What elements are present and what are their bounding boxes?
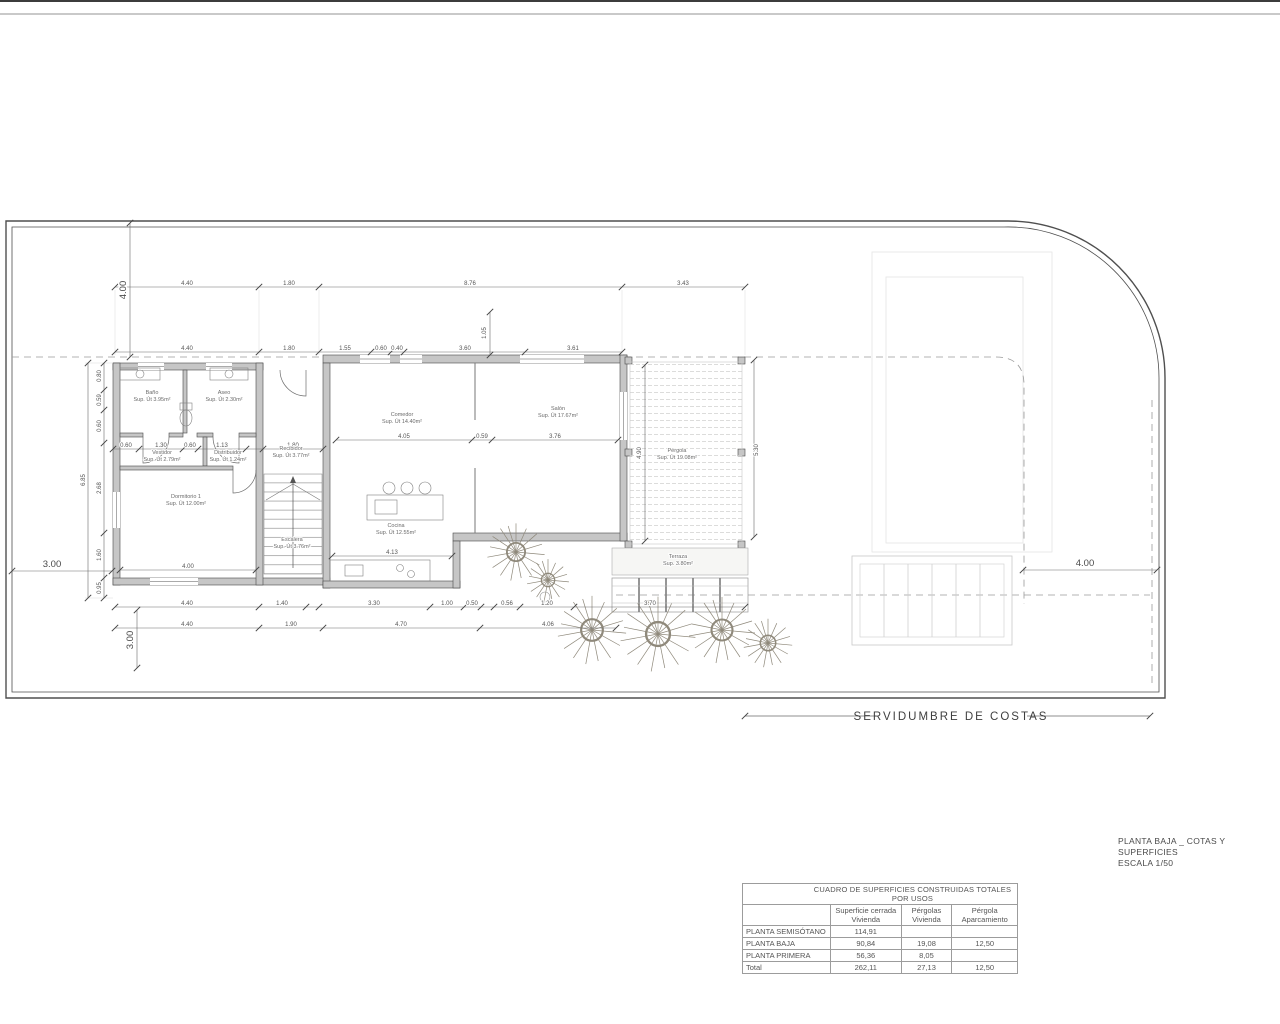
drawing-title: PLANTA BAJA _ COTAS Y SUPERFICIES [1118,836,1268,858]
svg-text:3.30: 3.30 [368,601,380,607]
svg-text:0.56: 0.56 [501,601,513,607]
svg-text:1.13: 1.13 [216,443,228,449]
svg-text:0.60: 0.60 [120,443,132,449]
svg-text:4.70: 4.70 [395,622,407,628]
svg-text:Sup. Út 17.67m²: Sup. Út 17.67m² [538,412,578,419]
svg-text:Terraza: Terraza [669,554,688,560]
table-row: PLANTA SEMISÓTANO 114,91 [743,926,1018,938]
svg-text:Escalera: Escalera [281,537,303,543]
svg-text:5.30: 5.30 [754,444,760,456]
svg-text:Sup. Út 14.40m²: Sup. Út 14.40m² [382,418,422,425]
svg-text:1.80: 1.80 [283,346,295,352]
surfaces-table: CUADRO DE SUPERFICIES CONSTRUIDAS TOTALE… [742,883,1018,974]
svg-text:6.85: 6.85 [81,474,87,486]
surfaces-table-title: CUADRO DE SUPERFICIES CONSTRUIDAS TOTALE… [743,884,1018,905]
svg-text:0.60: 0.60 [97,420,103,432]
svg-text:0.59: 0.59 [476,434,488,440]
svg-text:Sup. Út 3.95m²: Sup. Út 3.95m² [134,396,171,403]
svg-text:1.00: 1.00 [441,601,453,607]
svg-text:Baño: Baño [146,390,159,396]
svg-text:0.50: 0.50 [466,601,478,607]
svg-text:Sup. 3.80m²: Sup. 3.80m² [663,561,693,567]
svg-text:1.05: 1.05 [482,327,488,339]
servidumbre-label: SERVIDUMBRE DE COSTAS [854,711,1049,723]
svg-text:3.00: 3.00 [43,559,62,570]
svg-text:Salón: Salón [551,406,565,412]
svg-text:Recibidor: Recibidor [279,446,302,452]
svg-text:1.60: 1.60 [97,549,103,561]
svg-text:4.06: 4.06 [542,622,554,628]
svg-text:3.00: 3.00 [125,631,136,650]
svg-text:Sup. Út 2.79m²: Sup. Út 2.79m² [144,456,181,463]
svg-text:4.13: 4.13 [386,550,398,556]
header-pergola-aparcamiento: Pérgola Aparcamiento [952,905,1018,926]
svg-text:4.00: 4.00 [1076,558,1095,569]
svg-text:0.60: 0.60 [184,443,196,449]
drawing-scale: ESCALA 1/50 [1118,858,1268,869]
svg-text:4.05: 4.05 [398,434,410,440]
drawing-title-block: PLANTA BAJA _ COTAS Y SUPERFICIES ESCALA… [1118,836,1268,869]
svg-text:1.80: 1.80 [283,281,295,287]
svg-text:3.70: 3.70 [644,601,656,607]
svg-text:Sup. Út 2.30m²: Sup. Út 2.30m² [206,396,243,403]
surfaces-table-header: Superficie cerrada Vivienda Pérgolas Viv… [743,905,1018,926]
dimension-labels: 4.40 1.80 8.76 3.43 4.00 4.40 1.80 1.55 … [43,281,1095,650]
header-empty [743,905,831,926]
svg-text:8.76: 8.76 [464,281,476,287]
svg-text:4.40: 4.40 [181,346,193,352]
svg-text:0.80: 0.80 [97,370,103,382]
svg-text:0.59: 0.59 [97,394,103,406]
svg-text:4.40: 4.40 [181,281,193,287]
svg-text:Distribuidor: Distribuidor [214,450,242,456]
svg-text:Comedor: Comedor [391,412,414,418]
floor-plan-svg: 4.40 1.80 8.76 3.43 4.00 4.40 1.80 1.55 … [0,0,1280,1024]
svg-text:3.43: 3.43 [677,281,689,287]
drawing-sheet: 4.40 1.80 8.76 3.43 4.00 4.40 1.80 1.55 … [0,0,1280,1024]
svg-text:1.55: 1.55 [339,346,351,352]
svg-text:Sup. Út 3.76m²: Sup. Út 3.76m² [274,543,311,550]
table-row: PLANTA PRIMERA 56,36 8,05 [743,950,1018,962]
svg-text:4.40: 4.40 [181,601,193,607]
svg-text:1.20: 1.20 [541,601,553,607]
header-pergolas-vivienda: Pérgolas Vivienda [901,905,952,926]
svg-text:4.40: 4.40 [181,622,193,628]
carport [852,556,1012,645]
svg-text:1.40: 1.40 [276,601,288,607]
svg-text:Vestidor: Vestidor [152,450,172,456]
svg-text:2.68: 2.68 [97,482,103,494]
svg-text:Sup. Út 12.55m²: Sup. Út 12.55m² [376,529,416,536]
svg-text:Sup. Út 3.77m²: Sup. Út 3.77m² [273,452,310,459]
stairs [264,474,322,574]
svg-text:1.90: 1.90 [285,622,297,628]
svg-text:Sup. Út 1.24m²: Sup. Út 1.24m² [210,456,247,463]
svg-text:Cocina: Cocina [387,523,405,529]
svg-text:3.61: 3.61 [567,346,579,352]
svg-text:0.40: 0.40 [391,346,403,352]
svg-text:0.95: 0.95 [97,582,103,594]
svg-text:1.30: 1.30 [155,443,167,449]
svg-text:4.90: 4.90 [637,447,643,459]
svg-text:Dormitorio 1: Dormitorio 1 [171,494,201,500]
table-row: PLANTA BAJA 90,84 19,08 12,50 [743,938,1018,950]
svg-text:Sup. Út 19.08m²: Sup. Út 19.08m² [657,454,697,461]
svg-text:3.60: 3.60 [459,346,471,352]
table-row-total: Total 262,11 27,13 12,50 [743,962,1018,974]
svg-text:4.00: 4.00 [182,564,194,570]
svg-text:4.00: 4.00 [118,281,129,300]
svg-text:3.76: 3.76 [549,434,561,440]
svg-text:Aseo: Aseo [218,390,231,396]
header-superficie-cerrada: Superficie cerrada Vivienda [831,905,901,926]
servidumbre-dimension: SERVIDUMBRE DE COSTAS [742,711,1153,723]
svg-text:0.60: 0.60 [375,346,387,352]
projection-outline [872,252,1052,552]
svg-text:Sup. Út 12.00m²: Sup. Út 12.00m² [166,500,206,507]
svg-text:Pérgola: Pérgola [668,448,688,454]
